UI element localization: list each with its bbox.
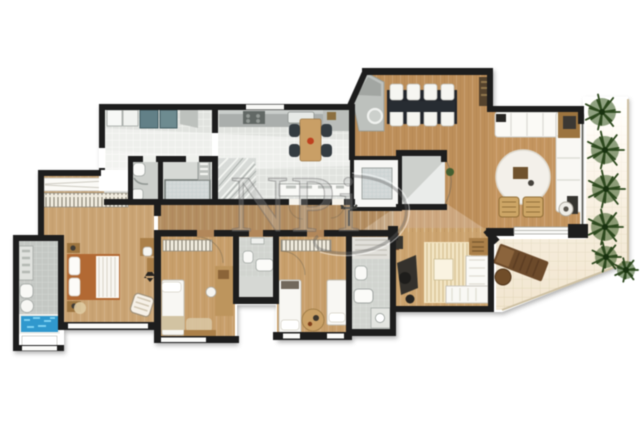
svg-text:NPi: NPi	[230, 159, 362, 249]
